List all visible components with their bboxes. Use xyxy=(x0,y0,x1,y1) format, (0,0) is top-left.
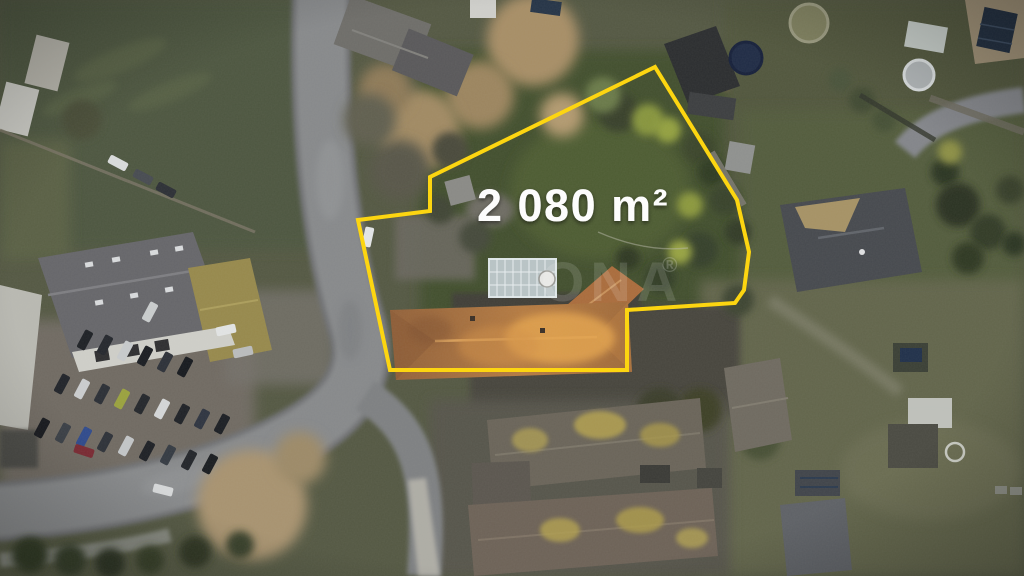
aerial-photo: ONA ® 2 080 m² xyxy=(0,0,1024,576)
vignette xyxy=(0,0,1024,576)
aerial-photo-canvas: ONA ® 2 080 m² xyxy=(0,0,1024,576)
